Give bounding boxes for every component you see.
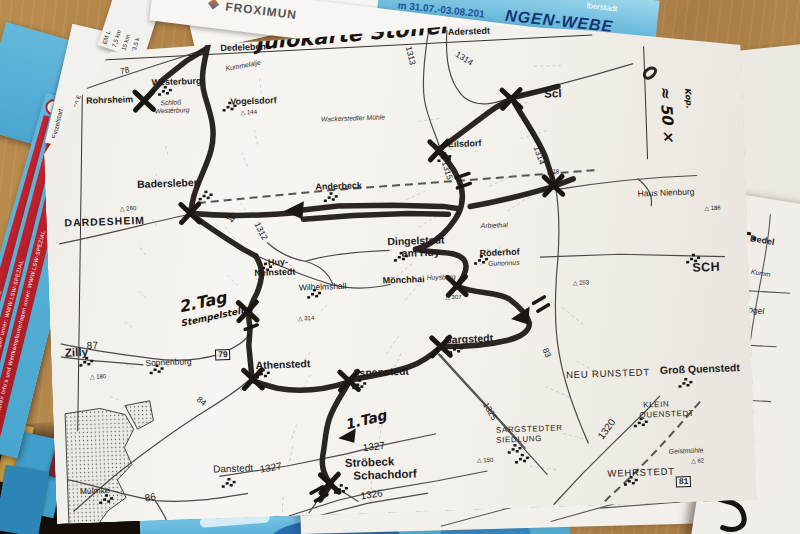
map-label: Haus Nienburg xyxy=(638,188,695,198)
map-label: Sonnenburg xyxy=(145,357,192,367)
map-label: 78 xyxy=(119,65,130,76)
map-label: 83 xyxy=(541,347,552,359)
event-city-fragment: lberstadt xyxy=(586,1,617,13)
map-label: QUENSTEDT xyxy=(639,410,694,420)
map-label: 1312 xyxy=(253,221,269,242)
map-label: Vogelsdorf xyxy=(230,96,277,107)
map-label: KLEIN xyxy=(643,401,669,410)
map-label: Aderstedt xyxy=(448,27,490,37)
map-label: Wackerstedter Mühle xyxy=(321,114,385,123)
road-badge-81: 81 xyxy=(676,476,692,487)
map-label: SIEDLUNG xyxy=(496,435,542,445)
map-label: Geistmühle xyxy=(669,447,704,455)
map-label: DARDESHEIM xyxy=(64,215,145,228)
map-label: Rohrsheim xyxy=(86,95,133,106)
handwritten-day1: 1.Tag xyxy=(343,408,387,432)
map-label: Athenstedt xyxy=(255,358,310,370)
handwritten-copy-note: Kop. xyxy=(683,88,692,109)
map-label: Anderbeck xyxy=(315,181,362,192)
map-label: Aspenstedt xyxy=(352,366,410,378)
map-label: 87 xyxy=(87,341,98,351)
map-label: Röderhof xyxy=(480,248,520,258)
map-label: △ 314 xyxy=(298,315,314,322)
map-label: △ 144 xyxy=(241,109,257,116)
map-label: Mönchhai xyxy=(382,275,424,285)
froximun-logo-text: FROXIMUN xyxy=(225,0,298,22)
map-label: 178 xyxy=(549,168,559,174)
map-label: NEU RUNSTEDT xyxy=(566,367,650,379)
map-label: Badersleben xyxy=(137,177,200,190)
map-label: 1326 xyxy=(360,488,383,501)
map-label: 1327 xyxy=(259,461,283,475)
map-label: Westerburg xyxy=(151,77,201,88)
map-label: 86 xyxy=(144,492,157,504)
main-map-sheet: Julokarte Stoffel≈ 50 ×Kop.2.TagStempels… xyxy=(39,0,756,524)
map-label: △ 253 xyxy=(573,279,589,286)
map-label: Gunonnus xyxy=(488,260,520,268)
map-label: Danstedt xyxy=(213,463,253,474)
map-label: △ 260 xyxy=(120,205,136,212)
map-label: 84 xyxy=(224,212,237,225)
map-label: SCH xyxy=(692,261,720,274)
map-label: Neinstedt xyxy=(254,268,295,278)
map-label: Kumm xyxy=(750,269,770,279)
map-label: Zilly xyxy=(65,347,88,359)
map-label: 1314 xyxy=(532,145,546,166)
map-label: Schachdorf xyxy=(353,468,417,482)
map-label: SARGSTEDTER xyxy=(496,424,563,434)
map-label: 1314 xyxy=(454,50,474,67)
photo-of-map-on-desk: Alle weiteren Info's und Wettkampfunterl… xyxy=(0,0,800,534)
map-label: Westerburg xyxy=(154,107,189,115)
map-label: Mulmke xyxy=(80,486,110,496)
road-badge-79: 79 xyxy=(215,349,231,360)
map-label: 1325 xyxy=(482,401,499,422)
map-label: △ 186 xyxy=(704,205,720,212)
map-label: WEHRSTEDT xyxy=(607,466,675,478)
map-label: Eilsdorf xyxy=(448,139,482,149)
map-label: Kummelalje xyxy=(225,60,261,73)
map-label: am Huy xyxy=(402,247,440,259)
map-label: 84 xyxy=(195,395,208,408)
map-label: △ 150 xyxy=(477,457,493,464)
map-label: 1315 xyxy=(440,160,454,181)
froximun-logo-icon xyxy=(208,0,219,10)
map-content: Julokarte Stoffel≈ 50 ×Kop.2.TagStempels… xyxy=(0,0,800,534)
map-label: △ 62 xyxy=(691,457,704,463)
handwritten-copy-count: ≈ 50 × xyxy=(657,85,676,142)
map-label: Dedel xyxy=(749,234,775,247)
map-label: Sargstedt xyxy=(445,333,494,345)
map-labels: Julokarte Stoffel≈ 50 ×Kop.2.TagStempels… xyxy=(0,0,800,534)
map-label: Wilhelmshall xyxy=(299,282,347,292)
map-label: 1313 xyxy=(404,45,417,65)
map-label: △ 180 xyxy=(90,373,106,380)
map-label: Huysburg xyxy=(426,274,455,282)
map-label: Arbiethal xyxy=(481,222,508,230)
map-label: △ 307 xyxy=(445,294,461,301)
map-label: Scl xyxy=(544,88,562,100)
map-label: 1327 xyxy=(362,441,385,454)
map-label: 1320 xyxy=(596,417,617,441)
map-label: Dedeleben xyxy=(220,42,266,53)
map-label: Groß Quenstedt xyxy=(660,362,740,375)
